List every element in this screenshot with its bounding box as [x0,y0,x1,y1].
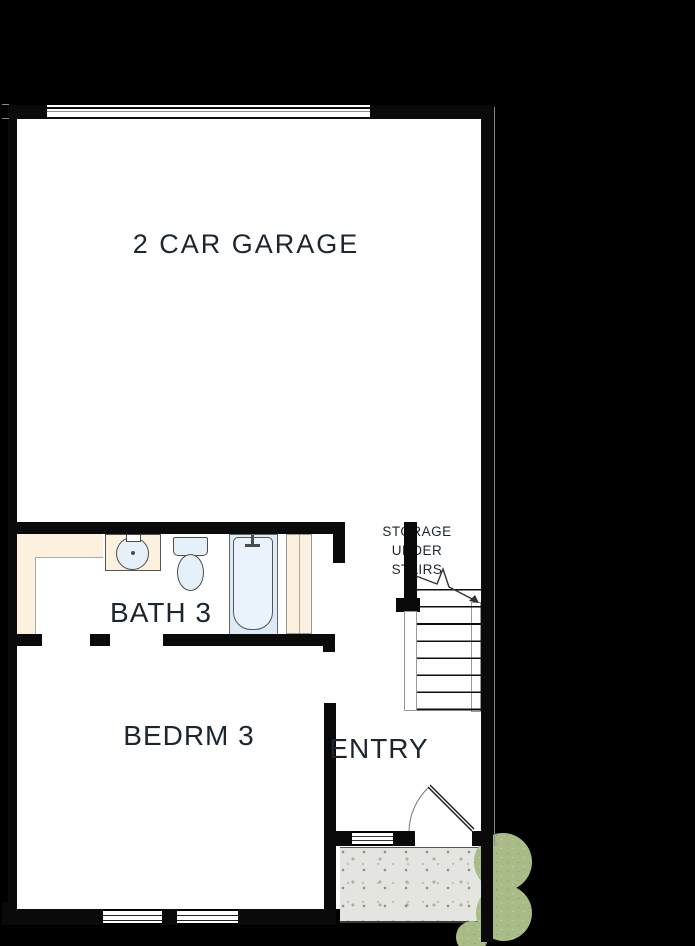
stair-stringer-left [404,611,417,711]
wall-exterior-left [8,105,17,925]
wall-bedroom-bottom-1 [8,909,103,925]
wall-bedroom-bottom-2 [238,909,336,925]
wall-bath-bottom-3 [163,634,335,646]
sidelite-window [352,831,393,846]
floorplan-canvas: STORAGE UNDER STAIRS 2 CAR GARAGE BATH [0,0,695,946]
window-mullion [162,909,177,925]
sink-drain-icon [131,551,135,555]
wall-entry-bottom-a [333,831,352,846]
room-label-bedroom: BEDRM 3 [89,720,289,752]
ref-tick-top-left-a [2,104,9,105]
wall-bath-bottom-stub [323,634,335,652]
wall-bath-bottom-2 [90,634,110,646]
bedroom-window-2 [177,909,238,925]
wall-bath-right-stub [333,522,345,563]
wall-garage-bottom [8,522,345,534]
sink-faucet-icon [126,534,141,542]
ref-tick-top-left-b [2,118,9,119]
entry-door-swing [400,778,490,838]
ref-line-right [494,107,495,846]
garage-door [47,105,370,119]
wall-top-right [370,105,481,119]
toilet-bowl-icon [177,554,204,591]
wall-top-left-corner [8,105,47,119]
wall-bath-bottom-1 [17,634,42,646]
stair-direction-arrow [408,562,484,608]
room-label-garage: 2 CAR GARAGE [96,229,396,260]
room-label-entry: ENTRY [320,733,438,765]
bedroom-window-1 [103,909,162,925]
bathtub-faucet-icon [245,544,260,547]
storage-label-line1: STORAGE [378,522,456,541]
room-label-bath: BATH 3 [61,597,261,629]
storage-label-line2: UNDER [378,541,456,560]
linen-shelf [286,534,312,634]
